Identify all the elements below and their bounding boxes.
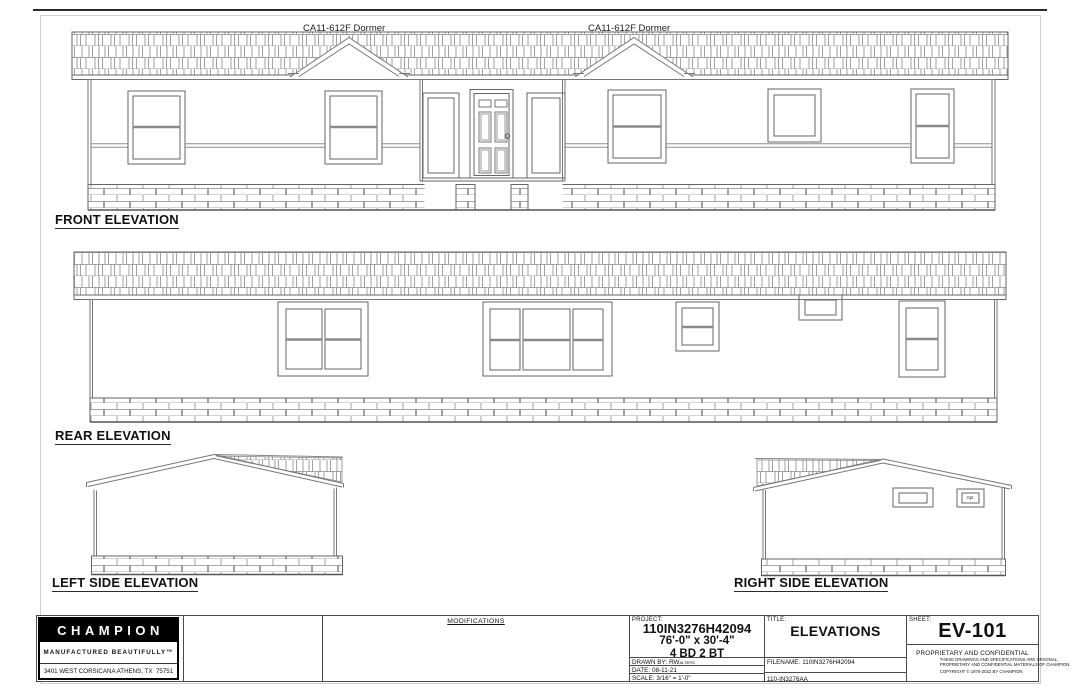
left-wall-corners xyxy=(94,488,337,557)
sheet-label: SHEET: xyxy=(909,617,931,623)
sheet-title-value: ELEVATIONS xyxy=(765,624,906,638)
legal-line-1: PROPRIETARY AND CONFIDENTIAL xyxy=(907,650,1038,657)
right-side-elevation-drawing xyxy=(754,459,1012,576)
front-elevation-drawing xyxy=(72,32,1008,211)
title-cell: TITLE: ELEVATIONS FILENAME:110IN3276H420… xyxy=(764,616,906,681)
right-transom-window xyxy=(893,488,933,507)
company-address: 3401 WEST CORSICANA ATHENS, TX 75751 xyxy=(40,663,177,678)
company-logo-block: CHAMPION MANUFACTURED BEAUTIFULLY™ 3401 … xyxy=(38,617,179,680)
front-fascia xyxy=(72,75,1008,80)
right-side-elevation-label: RIGHT SIDE ELEVATION xyxy=(734,575,888,592)
modifications-header: MODIFICATIONS xyxy=(323,616,629,625)
dormer-label-right: CA11-612F Dormer xyxy=(588,23,670,34)
sheet-cell-divider xyxy=(907,644,1038,645)
company-name: CHAMPION xyxy=(40,619,177,642)
front-roof xyxy=(72,32,1008,75)
file-code-value: 110-IN3276AA xyxy=(767,676,808,682)
front-brick-skirt xyxy=(88,184,995,211)
scale-label: SCALE: xyxy=(632,675,654,681)
left-side-elevation-label: LEFT SIDE ELEVATION xyxy=(52,575,198,592)
left-brick-skirt xyxy=(92,556,343,575)
legal-line-2: THESE DRAWINGS AND SPECIFICATIONS ARE OR… xyxy=(940,657,1006,660)
rear-roof xyxy=(74,252,1006,295)
drawn-by-row: DRAWN BY:RWalters xyxy=(630,657,764,665)
file-code-row: 110-IN3276AA xyxy=(765,672,906,681)
title-label: TITLE: xyxy=(767,617,786,623)
elevations-drawing-area xyxy=(0,0,1080,610)
front-wall xyxy=(88,80,995,186)
filename-row: FILENAME:110IN3276H42094 xyxy=(765,657,906,672)
scale-row: SCALE:3/16" = 1'-0" xyxy=(630,673,764,681)
project-label: PROJECT: xyxy=(632,617,663,623)
drawing-sheet: CA11-612F Dormer CA11-612F Dormer Opt FR… xyxy=(0,0,1080,699)
sheet-cell: SHEET: EV-101 PROPRIETARY AND CONFIDENTI… xyxy=(906,616,1038,681)
filename-label: FILENAME: xyxy=(767,659,800,666)
porch-pier-left xyxy=(456,185,475,211)
rear-elevation-label: REAR ELEVATION xyxy=(55,428,171,445)
scale-value: 3/16" = 1'-0" xyxy=(656,675,690,681)
left-side-elevation-drawing xyxy=(87,455,344,575)
project-cell: PROJECT: 110IN3276H42094 76'-0" x 30'-4"… xyxy=(629,616,764,681)
rear-wall xyxy=(90,300,997,399)
rear-elevation-drawing xyxy=(74,252,1006,422)
legal-line-4: COPYRIGHT © 1976-2022 BY CHAMPION xyxy=(940,669,1006,672)
modifications-cell: MODIFICATIONS xyxy=(322,616,629,681)
porch-pier-right xyxy=(511,185,528,211)
modifications-entries-cell xyxy=(183,616,322,681)
company-tagline: MANUFACTURED BEAUTIFULLY™ xyxy=(40,642,177,663)
right-brick-skirt xyxy=(762,559,1006,576)
dormer-label-left: CA11-612F Dormer xyxy=(303,23,385,34)
front-elevation-label: FRONT ELEVATION xyxy=(55,212,179,229)
filename-value: 110IN3276H42094 xyxy=(802,659,854,666)
rear-brick-skirt xyxy=(90,398,997,422)
rear-fascia xyxy=(74,295,1006,300)
project-number: 110IN3276H42094 xyxy=(630,622,764,635)
title-block: CHAMPION MANUFACTURED BEAUTIFULLY™ 3401 … xyxy=(36,615,1039,682)
project-dimensions: 76'-0" x 30'-4" xyxy=(630,636,764,648)
legal-line-3: PROPRIETARY AND CONFIDENTIAL MATERIALS O… xyxy=(940,662,1006,665)
sheet-number-value: EV-101 xyxy=(907,621,1038,641)
legal-block: PROPRIETARY AND CONFIDENTIAL THESE DRAWI… xyxy=(907,646,1038,674)
vent-box-label: Opt xyxy=(965,495,975,500)
date-row: DATE:08-11-21 xyxy=(630,665,764,673)
